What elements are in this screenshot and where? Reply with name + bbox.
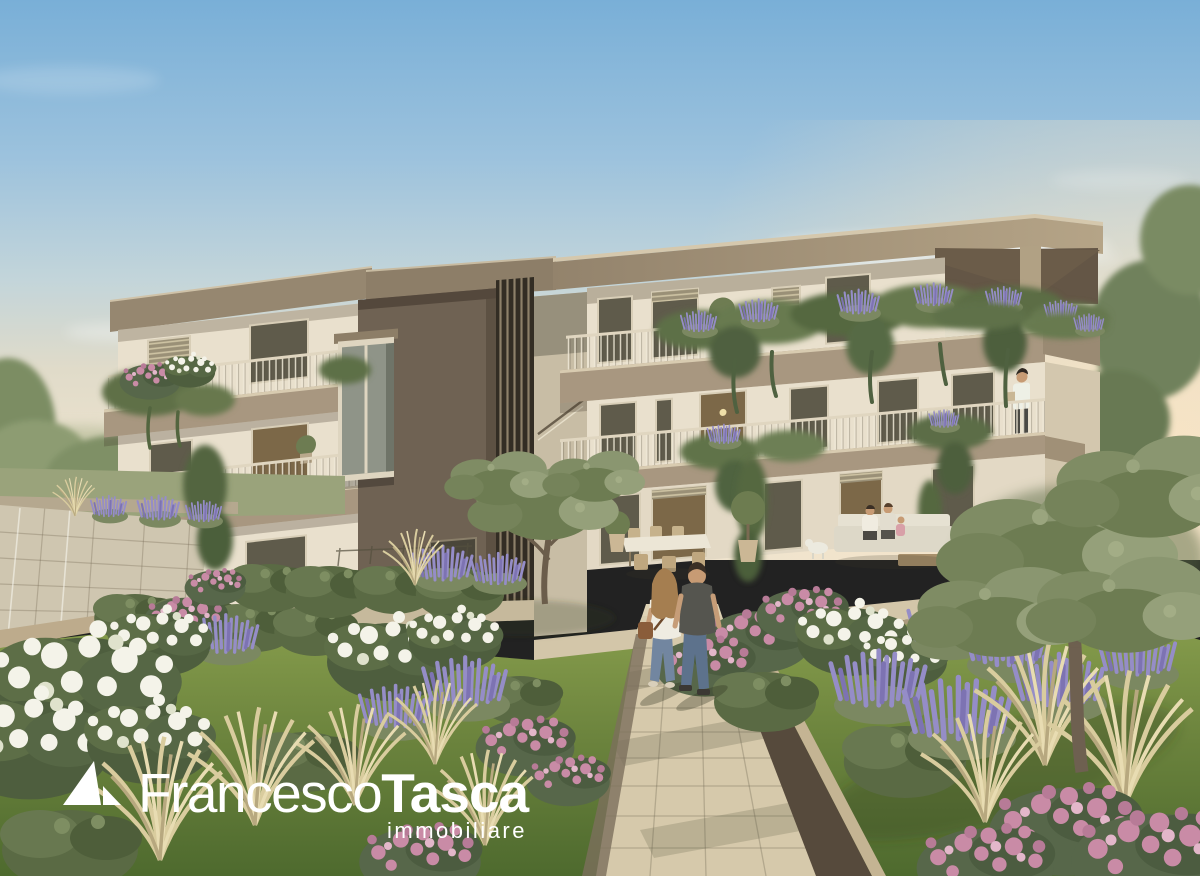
- man-shoe: [697, 689, 710, 695]
- glass-door: [764, 480, 802, 551]
- woman-shoe: [665, 682, 675, 688]
- cloud: [1050, 170, 1190, 190]
- person-head: [898, 517, 905, 524]
- person-torso: [896, 524, 905, 536]
- person-torso: [862, 515, 878, 532]
- corner-window-shade: [386, 343, 394, 472]
- plant: [731, 491, 765, 525]
- render-canvas: FrancescoTasca immobiliare: [0, 0, 1200, 876]
- plant-pot: [738, 540, 758, 562]
- person-legs: [863, 531, 877, 540]
- brand-wordmark: FrancescoTasca: [138, 762, 530, 824]
- woman-shoe: [648, 681, 658, 687]
- brand-name-bold: Tasca: [381, 762, 529, 824]
- person-legs: [881, 530, 895, 539]
- chair: [634, 554, 648, 570]
- shrub: [0, 810, 142, 876]
- man-tshirt: [679, 583, 716, 636]
- brand-tagline: immobiliare: [387, 818, 527, 843]
- shoulder-bag: [638, 622, 653, 639]
- dog-head: [805, 539, 813, 547]
- plant-pot: [609, 534, 625, 552]
- man-shoe: [679, 685, 692, 691]
- person-torso: [880, 513, 896, 531]
- brand-name-light: Francesco: [138, 762, 381, 824]
- real-estate-render: FrancescoTasca immobiliare: [0, 0, 1200, 876]
